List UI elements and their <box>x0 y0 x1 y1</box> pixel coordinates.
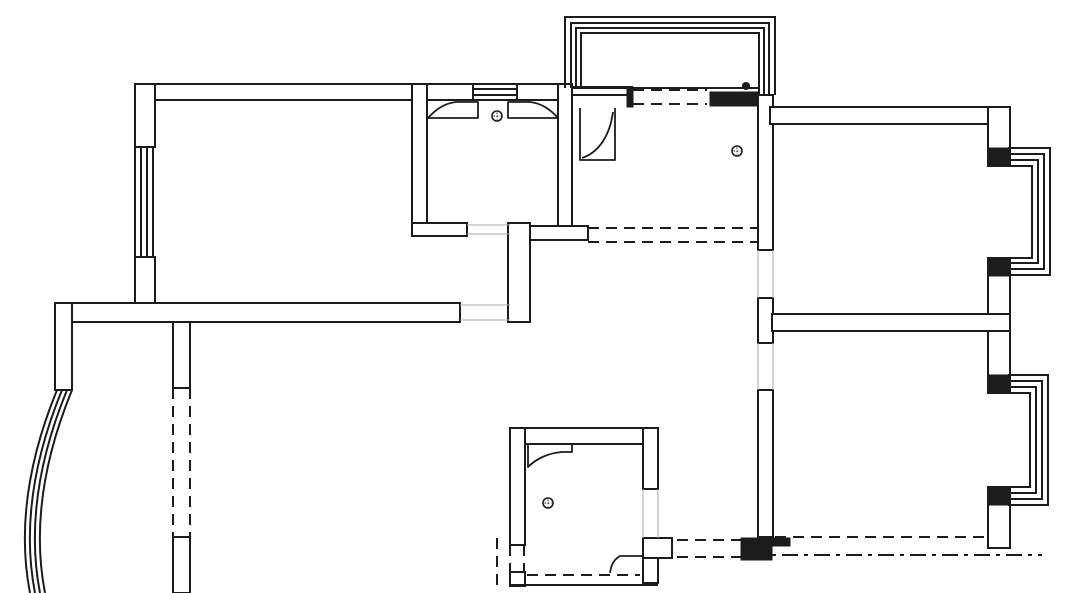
wall-stub-balcony-right-bar <box>710 92 758 106</box>
wall-stub-bay2-bottom <box>988 487 1010 505</box>
openings-layer <box>460 225 773 538</box>
wall-bath1-left <box>412 84 427 236</box>
balcony-top-frame-line-3 <box>576 28 764 95</box>
bay-window-bottom-right-line-4 <box>1008 393 1030 487</box>
wall-bath2-left-corner <box>510 572 525 586</box>
wall-corner-bedroom2-bottom-left <box>741 538 772 560</box>
wall-bath2-left-upper <box>510 428 525 545</box>
door-kitchen-frame <box>580 108 615 160</box>
wall-stub-bay1-bottom <box>988 258 1010 276</box>
bay-window-top-right-line-3 <box>1008 160 1038 263</box>
wall-bath2-right-upper <box>643 428 658 489</box>
wall-bedroom1-top <box>770 107 1010 124</box>
door-leaf-bath1-left <box>428 102 478 118</box>
wall-between-bedrooms <box>772 314 1010 331</box>
wall-dining-divider-lower <box>173 537 190 593</box>
wall-hall-band <box>55 303 460 322</box>
door-leaf-bath2-top <box>528 444 572 467</box>
bay-window-bottom-right-line-3 <box>1008 387 1036 493</box>
bay-window-top-right-line-4 <box>1008 166 1032 258</box>
wall-right-zone-left-c <box>758 390 773 537</box>
wall-left-lower <box>135 257 155 303</box>
door-kitchen-swing <box>582 112 613 158</box>
wall-stub-bay1-top <box>988 148 1010 166</box>
walls-layer <box>55 84 1010 593</box>
balcony-top-frame-line-4 <box>581 33 759 95</box>
floor-drain-bath2-cross <box>545 500 552 507</box>
door-leaf-bath1-right <box>508 102 558 118</box>
column-dot-balcony <box>742 82 750 90</box>
floor-plan-canvas <box>0 0 1080 593</box>
wall-bath1-right <box>558 84 572 240</box>
wall-bath2-top <box>510 428 658 444</box>
floor-drain-bath1-cross <box>494 113 501 120</box>
door-leaf-bath2-bottom <box>610 548 643 573</box>
wall-bath1-bottom <box>412 223 467 236</box>
floor-drain-kitchen-cross <box>734 148 741 155</box>
wall-hall-connector-horizontal <box>530 226 588 240</box>
wall-left-upper <box>135 84 155 147</box>
wall-dining-divider-upper <box>173 322 190 388</box>
wall-stub-balcony-left-cap <box>627 87 633 107</box>
doors-layer <box>428 102 643 573</box>
wall-bath2-right-lower <box>643 558 658 583</box>
wall-stub-bedroom2-bottom <box>772 538 790 546</box>
wall-top-right-of-window <box>517 84 558 100</box>
dashed-layer <box>173 90 1042 586</box>
wall-stub-bay2-top <box>988 375 1010 393</box>
wall-hall-connector-vertical <box>508 223 530 322</box>
wall-balcony-post-left <box>55 303 72 390</box>
wall-right-zone-left-b <box>758 298 773 343</box>
floor-plan-stage <box>0 0 1080 593</box>
wall-bath2-jog <box>643 538 672 558</box>
